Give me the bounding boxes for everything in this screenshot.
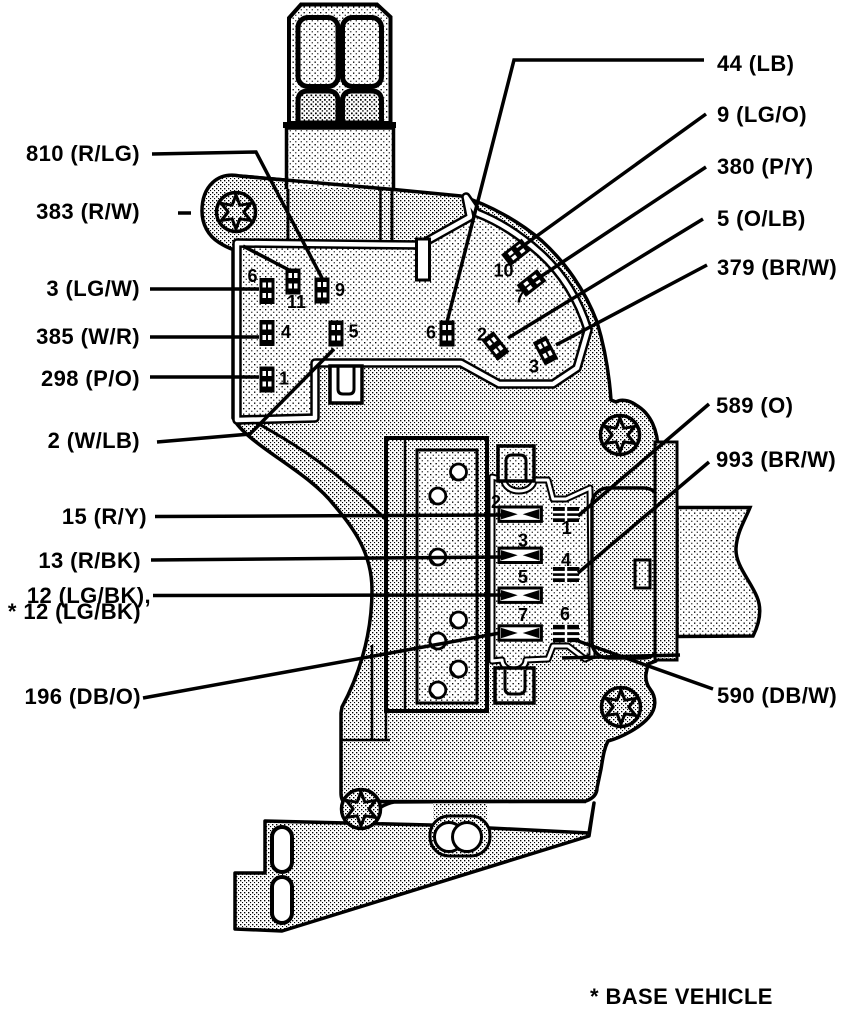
svg-text:4: 4	[281, 322, 291, 342]
svg-text:44 (LB): 44 (LB)	[717, 51, 794, 76]
svg-text:2: 2	[477, 325, 487, 345]
svg-text:380 (P/Y): 380 (P/Y)	[717, 154, 814, 179]
svg-text:383 (R/W): 383 (R/W)	[36, 199, 140, 224]
svg-text:589 (O): 589 (O)	[716, 393, 793, 418]
svg-text:15 (R/Y): 15 (R/Y)	[62, 504, 147, 529]
svg-text:* BASE VEHICLE: * BASE VEHICLE	[590, 984, 773, 1009]
svg-text:1: 1	[279, 369, 289, 389]
svg-text:379 (BR/W): 379 (BR/W)	[717, 255, 837, 280]
svg-text:385 (W/R): 385 (W/R)	[36, 324, 140, 349]
svg-text:1: 1	[562, 518, 572, 538]
svg-text:13 (R/BK): 13 (R/BK)	[38, 548, 141, 573]
svg-text:* 12 (LG/BK): * 12 (LG/BK)	[8, 599, 141, 624]
svg-text:2: 2	[491, 492, 501, 512]
svg-text:5: 5	[518, 567, 528, 587]
svg-text:10: 10	[493, 261, 513, 281]
svg-text:7: 7	[515, 287, 525, 307]
svg-text:590 (DB/W): 590 (DB/W)	[717, 683, 837, 708]
svg-text:3 (LG/W): 3 (LG/W)	[46, 276, 140, 301]
svg-text:3: 3	[518, 531, 528, 551]
svg-text:993 (BR/W): 993 (BR/W)	[716, 447, 836, 472]
svg-text:9 (LG/O): 9 (LG/O)	[717, 102, 807, 127]
svg-text:196 (DB/O): 196 (DB/O)	[25, 684, 141, 709]
svg-text:810 (R/LG): 810 (R/LG)	[26, 141, 140, 166]
svg-text:2 (W/LB): 2 (W/LB)	[48, 428, 140, 453]
svg-text:6: 6	[247, 266, 257, 286]
svg-text:5: 5	[348, 322, 358, 342]
svg-text:11: 11	[287, 292, 306, 312]
svg-text:3: 3	[529, 357, 539, 377]
svg-text:5 (O/LB): 5 (O/LB)	[717, 206, 806, 231]
svg-text:9: 9	[335, 280, 345, 300]
svg-text:6: 6	[560, 604, 570, 624]
svg-text:4: 4	[561, 550, 571, 570]
svg-text:7: 7	[518, 605, 528, 625]
svg-text:298 (P/O): 298 (P/O)	[41, 366, 140, 391]
svg-text:6: 6	[426, 323, 436, 343]
